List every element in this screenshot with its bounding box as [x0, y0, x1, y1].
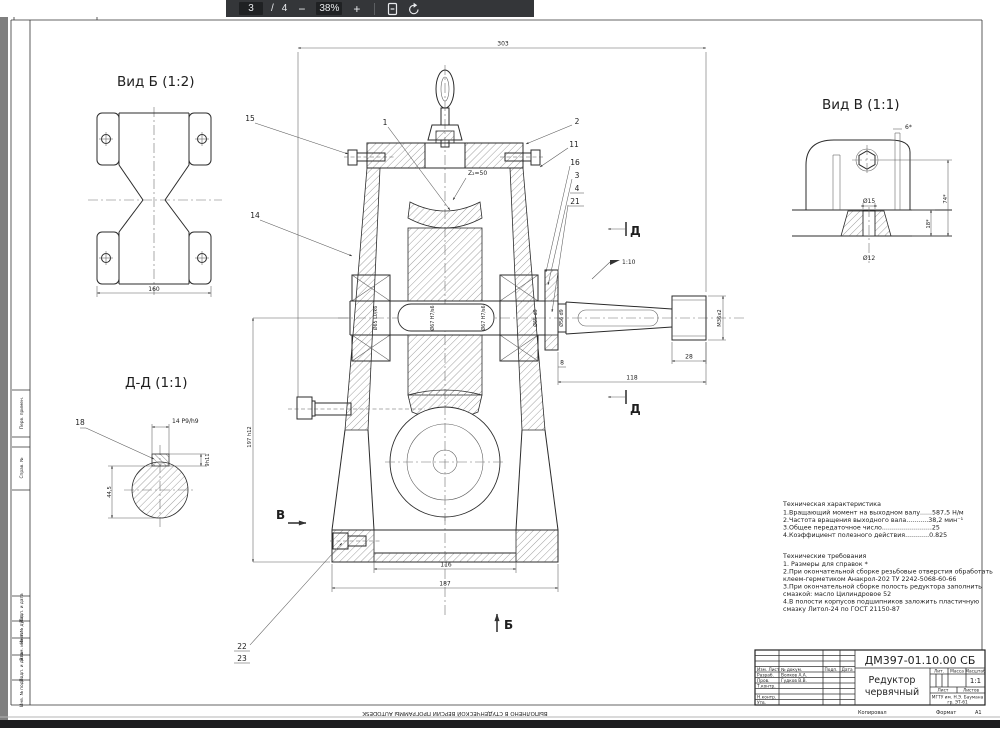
svg-text:клеем-герметиком Анакрол-202 Т: клеем-герметиком Анакрол-202 ТУ 2242-506… [783, 576, 956, 583]
svg-text:Пров.: Пров. [757, 678, 770, 684]
svg-text:15: 15 [245, 114, 255, 123]
dim-hole-bottom: Ø12 [863, 255, 876, 262]
viewer-bottom-bar [0, 720, 1000, 728]
svg-text:Масса: Масса [950, 669, 964, 675]
svg-text:23: 23 [237, 654, 247, 663]
footer-format-value: А1 [975, 710, 982, 716]
zoom-out-button[interactable]: − [295, 2, 308, 16]
svg-text:Разраб.: Разраб. [757, 672, 774, 678]
svg-text:2.При окончательной сборке рез: 2.При окончательной сборке резьбовые отв… [783, 568, 993, 576]
svg-text:4: 4 [575, 184, 580, 193]
svg-text:смазку Литол-24 по ГОСТ 21150-: смазку Литол-24 по ГОСТ 21150-87 [783, 606, 900, 613]
svg-text:Лист: Лист [938, 688, 949, 694]
autodesk-watermark: ВЫПОЛНЕНО В СТУДЕНЧЕСКОЙ ВЕРСИИ ПРОГРАММ… [362, 710, 548, 717]
dim-section-height: 44,5 [107, 486, 113, 498]
footer-format: Формат [936, 710, 956, 716]
svg-text:Ø56 d9: Ø56 d9 [558, 309, 565, 327]
svg-text:смазкой: масло Цилиндровое 52: смазкой: масло Цилиндровое 52 [783, 590, 891, 598]
dim-base-inner: 116 [440, 562, 452, 569]
svg-text:Ø67 H7/s6: Ø67 H7/s6 [429, 305, 436, 330]
doc-number: ДМ397-01.10.00 СБ [865, 654, 976, 667]
svg-text:Т.контр.: Т.контр. [756, 683, 776, 689]
prov-name: Гудков В.В. [781, 678, 807, 684]
dim-6: 6* [905, 124, 912, 131]
dim-base-outer: 187 [439, 581, 451, 588]
svg-text:4.В полости корпусов подшипник: 4.В полости корпусов подшипников заложит… [783, 599, 979, 606]
svg-text:В: В [276, 508, 285, 522]
svg-text:№ докум.: № докум. [781, 667, 802, 673]
tech-char-title: Техническая характеристика [782, 501, 881, 508]
svg-text:Ø67 H7/s6: Ø67 H7/s6 [480, 305, 487, 330]
svg-text:2: 2 [575, 117, 580, 126]
rotate-icon[interactable] [407, 2, 421, 16]
svg-text:22: 22 [237, 642, 247, 651]
view-v-title: Вид В (1:1) [822, 97, 899, 113]
dim-height: 197 h12 [247, 426, 253, 447]
svg-text:Н.контр.: Н.контр. [757, 694, 776, 700]
org-group: гр. ЭТ-61 [947, 700, 968, 706]
svg-text:1: 1 [383, 118, 388, 127]
dim-thread: M36x2 [717, 309, 723, 326]
page-total: 4 [282, 3, 288, 14]
pdf-toolbar-controls: 3 / 4 − 38% + [226, 0, 534, 17]
svg-text:1. Размеры для справок *: 1. Размеры для справок * [783, 561, 868, 568]
view-b-title: Вид Б (1:2) [117, 74, 194, 90]
zoom-level[interactable]: 38% [316, 2, 342, 15]
svg-text:21: 21 [570, 197, 580, 206]
svg-text:3: 3 [575, 171, 580, 180]
svg-text:16: 16 [570, 158, 580, 167]
dim-thread-length: 28 [685, 354, 693, 361]
tech-req-title: Технические требования [782, 552, 867, 560]
dim-face-gap: 8 [560, 360, 564, 367]
razrab-name: Волков А.А. [781, 672, 807, 678]
zoom-in-button[interactable]: + [350, 2, 363, 16]
svg-text:Ø65 d9: Ø65 d9 [532, 309, 539, 327]
scale-value: 1:1 [970, 677, 981, 685]
svg-text:Лит.: Лит. [934, 669, 944, 675]
product-name-2: червячный [865, 687, 919, 698]
svg-text:Изм. Лист: Изм. Лист [757, 667, 780, 673]
svg-text:Б: Б [504, 618, 513, 632]
pdf-page-stage: Перв. примен. Справ. № Подп. и дата Инв.… [0, 17, 1000, 728]
svg-text:11: 11 [569, 140, 579, 149]
svg-text:Подп.: Подп. [825, 667, 838, 673]
dim-key-width: 14 P9/h9 [172, 418, 199, 425]
dim-hole-top: Ø15 [863, 198, 876, 205]
footer-copy: Копировал [858, 710, 887, 716]
dim-shaft-length: 118 [626, 375, 638, 382]
pdf-viewer-toolbar: 3 / 4 − 38% + [0, 0, 1000, 17]
svg-text:4.Коэффициент полезного действ: 4.Коэффициент полезного действия........… [783, 531, 947, 539]
wheel-teeth-label: Z₂=50 [468, 170, 487, 177]
svg-text:Утв.: Утв. [757, 700, 766, 706]
dim-74: 74* [943, 194, 949, 204]
product-name-1: Редуктор [869, 675, 916, 686]
svg-text:1.Вращающий момент на выходном: 1.Вращающий момент на выходном валу.....… [783, 509, 964, 517]
dim-taper: 1:10 [622, 259, 636, 266]
paper [0, 17, 1000, 728]
title-block: ДМ397-01.10.00 СБ Редуктор червячный Лит… [755, 650, 986, 706]
frame-label: Перв. примен. [19, 397, 25, 429]
svg-text:3.При окончательной сборке пол: 3.При окончательной сборке полость редук… [783, 583, 982, 591]
worm-wheel [398, 202, 494, 420]
svg-text:Листов: Листов [963, 688, 980, 694]
dim-key-depth: 9h11 [205, 453, 211, 466]
svg-text:Д: Д [630, 402, 641, 416]
svg-text:2.Частота вращения выходного в: 2.Частота вращения выходного вала.......… [783, 517, 964, 524]
frame-label: Справ. № [19, 457, 25, 478]
callout-18: 18 [75, 418, 85, 427]
svg-text:14: 14 [250, 211, 260, 220]
page-number-input[interactable]: 3 [239, 2, 263, 15]
dim-overall-width: 303 [497, 41, 509, 48]
dim-18: 18* [926, 219, 932, 229]
fit-page-icon[interactable] [386, 2, 399, 16]
page-separator: / [271, 3, 274, 14]
toolbar-divider [374, 3, 375, 15]
svg-text:Ø65 L0/k6: Ø65 L0/k6 [372, 306, 379, 331]
section-dd-title: Д-Д (1:1) [125, 375, 188, 391]
viewer-gutter-left [0, 17, 8, 720]
dim-160: 160 [148, 286, 160, 293]
svg-text:Д: Д [630, 224, 641, 238]
frame-label: Инв. № подл. [19, 677, 25, 707]
svg-text:Масштаб: Масштаб [965, 669, 986, 675]
drawing-sheet: Перв. примен. Справ. № Подп. и дата Инв.… [0, 17, 1000, 728]
svg-text:3.Общее передаточное число....: 3.Общее передаточное число..............… [783, 524, 940, 532]
svg-text:Дата: Дата [842, 667, 853, 673]
